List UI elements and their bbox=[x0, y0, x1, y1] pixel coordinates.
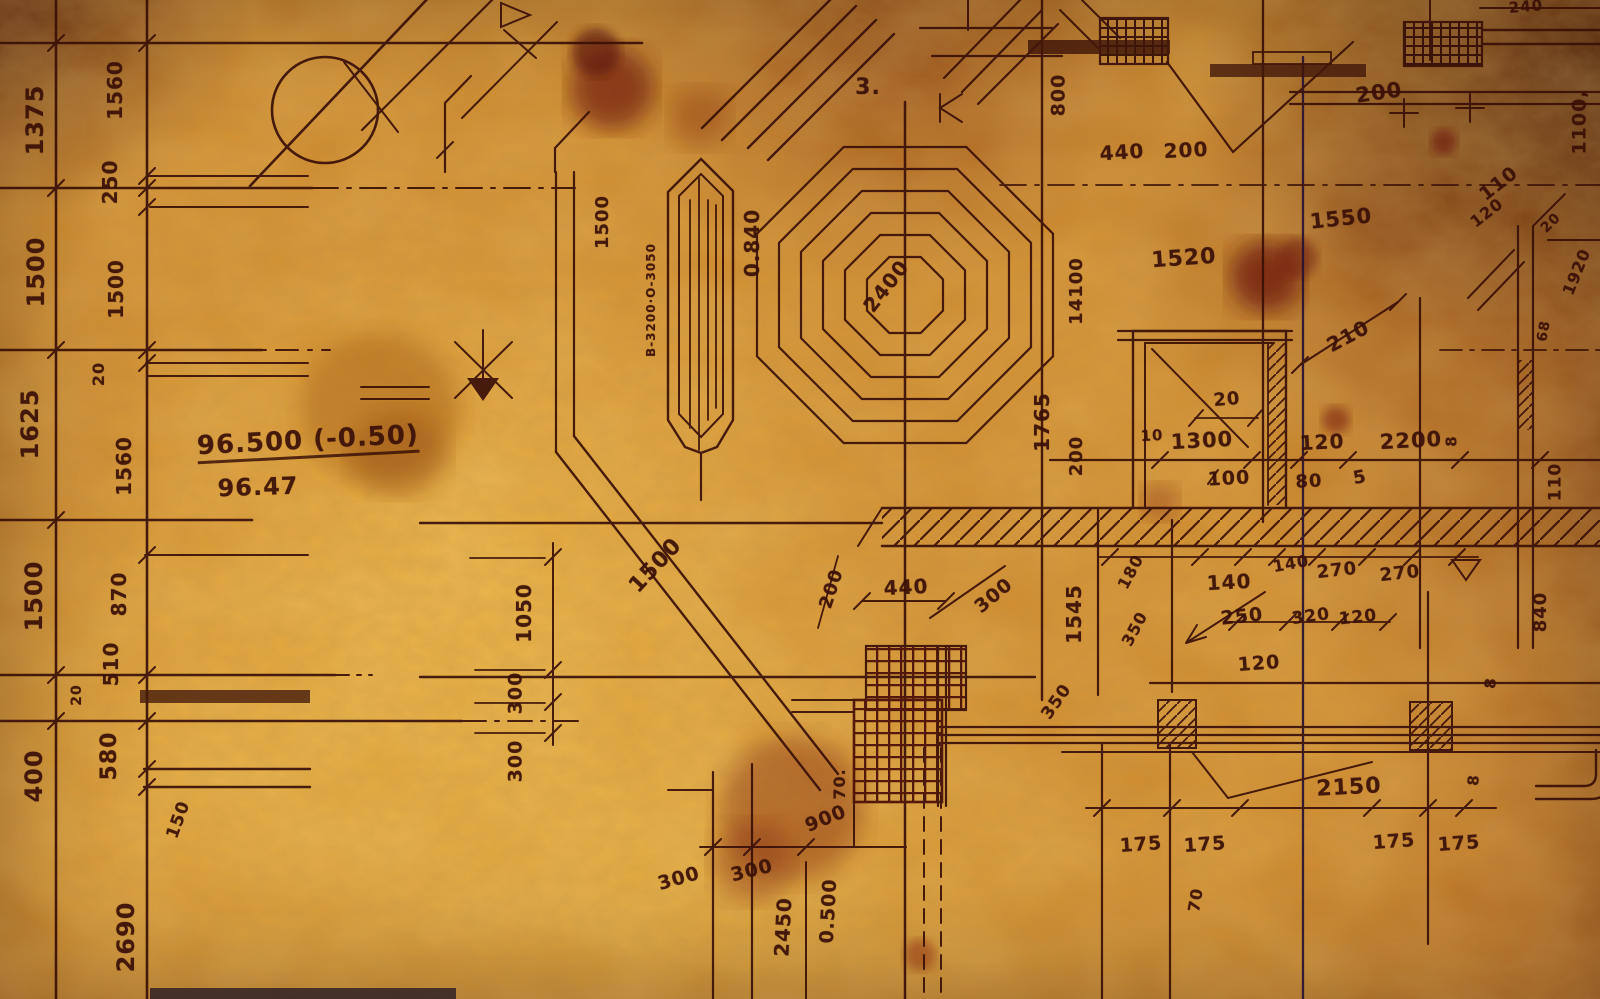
dimension-label: 175 bbox=[1372, 831, 1416, 853]
dimension-label: 2690 bbox=[114, 902, 138, 973]
dimension-label: 0.500 bbox=[818, 878, 840, 944]
dimension-label: 250 bbox=[100, 160, 120, 205]
dimension-label: 200 bbox=[817, 567, 847, 611]
dimension-label: 14100 bbox=[1068, 257, 1086, 325]
dimension-label: 8 bbox=[1483, 677, 1499, 690]
dimension-label: 350 bbox=[1119, 609, 1150, 649]
dimension-label: 120 bbox=[1468, 195, 1507, 230]
dimension-label: 20 bbox=[1213, 390, 1242, 410]
dimension-label: 120 bbox=[1299, 431, 1345, 453]
dimension-label: 2400 bbox=[860, 256, 912, 315]
dimension-label: 96.47 bbox=[217, 474, 299, 501]
dimension-label: 1765 bbox=[1032, 392, 1052, 452]
dimension-label: 3. bbox=[855, 77, 881, 99]
dimension-label: 140 bbox=[1206, 571, 1252, 593]
dimension-label: 80 bbox=[1295, 472, 1323, 491]
dimension-label: 1545 bbox=[1064, 584, 1084, 644]
dimension-label: 870 bbox=[109, 572, 129, 617]
dimension-label: 1050 bbox=[514, 583, 534, 643]
dimension-label: 580 bbox=[99, 732, 121, 781]
dimension-label: 1500 bbox=[106, 259, 126, 319]
blueprint-page: 1375150016251500400269015602501500201560… bbox=[0, 0, 1600, 999]
dimension-label: 300 bbox=[656, 864, 702, 894]
dimension-label: 800 bbox=[1050, 74, 1069, 117]
dimension-label: 1550 bbox=[1309, 205, 1373, 232]
dimension-label: 900 bbox=[803, 802, 850, 836]
dimension-label: 400 bbox=[22, 749, 46, 802]
dimension-labels-layer: 1375150016251500400269015602501500201560… bbox=[0, 0, 1600, 999]
dimension-label: 120 bbox=[1237, 653, 1281, 675]
dimension-label: 1560 bbox=[114, 436, 134, 496]
dimension-label: 1920 bbox=[1560, 247, 1593, 298]
dimension-label: 440 bbox=[883, 576, 929, 598]
dimension-label: 120 bbox=[1338, 608, 1378, 629]
dimension-label: 210 bbox=[1324, 317, 1373, 356]
dimension-label: 70 bbox=[1186, 887, 1206, 914]
dimension-label: 1560 bbox=[105, 60, 125, 120]
dimension-label: 1500 bbox=[626, 535, 687, 598]
dimension-label: B-3200·O-3050 bbox=[645, 243, 657, 357]
dimension-label: 2450 bbox=[771, 897, 794, 958]
dimension-label: 96.500 (-0.50) bbox=[196, 422, 419, 465]
dimension-label: 20 bbox=[91, 362, 107, 386]
dimension-label: 300 bbox=[507, 672, 526, 715]
dimension-label: 1500 bbox=[594, 195, 612, 249]
dimension-label: 110 bbox=[1548, 463, 1565, 502]
dimension-label: 350 bbox=[1039, 681, 1075, 722]
dimension-label: 270 bbox=[1316, 560, 1358, 582]
dimension-label: 320 bbox=[1291, 606, 1331, 628]
dimension-label: 300 bbox=[507, 740, 526, 783]
dimension-label: 270 bbox=[1379, 563, 1421, 585]
dimension-label: 8 bbox=[1445, 435, 1460, 446]
dimension-label: 250 bbox=[1220, 605, 1264, 628]
dimension-label: 440 bbox=[1099, 140, 1145, 163]
dimension-label: 150 bbox=[164, 799, 193, 841]
dimension-label: 300 bbox=[972, 575, 1017, 617]
dimension-label: 175 bbox=[1119, 834, 1163, 856]
dimension-label: 1375 bbox=[23, 85, 47, 156]
dimension-label: 8 bbox=[1466, 774, 1482, 787]
dimension-label: 68 bbox=[1535, 319, 1553, 343]
dimension-label: 70. bbox=[832, 768, 848, 799]
dimension-label: 100 bbox=[1207, 468, 1251, 489]
dimension-label: 1500 bbox=[22, 561, 46, 632]
dimension-label: 200 bbox=[1354, 79, 1403, 106]
dimension-label: 300 bbox=[729, 857, 775, 886]
dimension-label: 0.840 bbox=[742, 209, 762, 277]
dimension-label: 1520 bbox=[1151, 246, 1218, 272]
dimension-label: 175 bbox=[1183, 834, 1227, 856]
dimension-label: 20 bbox=[1538, 210, 1563, 235]
dimension-label: 180 bbox=[1115, 552, 1146, 592]
dimension-label: 140 bbox=[1272, 553, 1311, 575]
dimension-label: 175 bbox=[1437, 833, 1481, 855]
dimension-label: 1500 bbox=[24, 237, 48, 308]
dimension-label: 1100, bbox=[1571, 89, 1590, 154]
dimension-label: 200 bbox=[1163, 139, 1209, 161]
dimension-label: 20 bbox=[70, 684, 84, 705]
dimension-label: 10 bbox=[1140, 428, 1164, 444]
dimension-label: 1300 bbox=[1170, 429, 1233, 453]
dimension-label: 510 bbox=[101, 642, 121, 687]
dimension-label: 1625 bbox=[18, 389, 42, 460]
dimension-label: 240 bbox=[1508, 0, 1543, 16]
dimension-label: 2200 bbox=[1379, 429, 1442, 453]
dimension-label: 840 bbox=[1532, 592, 1550, 633]
dimension-label: 200 bbox=[1068, 436, 1086, 477]
dimension-label: 2150 bbox=[1316, 775, 1382, 800]
dimension-label: 5 bbox=[1352, 468, 1368, 488]
